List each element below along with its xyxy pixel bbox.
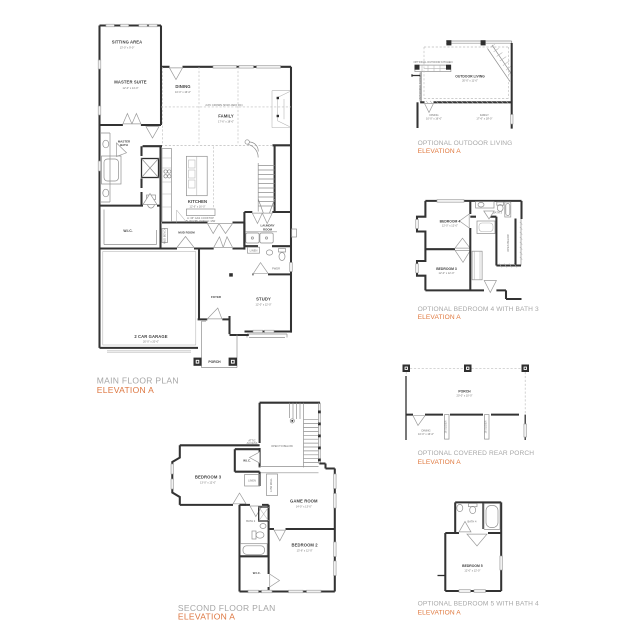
svg-text:13'-0" x 9'-0": 13'-0" x 9'-0" bbox=[120, 46, 135, 50]
svg-text:12'-0" x 12'-0": 12'-0" x 12'-0" bbox=[442, 224, 458, 228]
svg-text:GAME ROOM: GAME ROOM bbox=[290, 499, 318, 504]
svg-text:PORCH: PORCH bbox=[208, 360, 221, 364]
svg-text:20'-0" x 20'-0": 20'-0" x 20'-0" bbox=[143, 340, 159, 344]
svg-text:12'-0" x 14'-0": 12'-0" x 14'-0" bbox=[123, 86, 139, 90]
svg-text:17'-6" x 18'-0": 17'-6" x 18'-0" bbox=[218, 120, 234, 124]
svg-text:ELEVATION A: ELEVATION A bbox=[178, 612, 235, 622]
svg-text:ELEVATION A: ELEVATION A bbox=[97, 385, 154, 395]
svg-text:DINING: DINING bbox=[175, 84, 190, 89]
svg-text:KITCHEN: KITCHEN bbox=[188, 199, 207, 204]
svg-text:ELEVATION A: ELEVATION A bbox=[418, 459, 462, 466]
svg-text:PWDR: PWDR bbox=[272, 267, 280, 271]
svg-text:10'-0" x 16'-0": 10'-0" x 16'-0" bbox=[426, 117, 442, 121]
svg-text:DINING: DINING bbox=[421, 429, 430, 433]
svg-text:FAMILY: FAMILY bbox=[480, 113, 489, 117]
svg-text:20'-0" x 11'-0": 20'-0" x 11'-0" bbox=[462, 79, 478, 83]
svg-text:LOW WALL: LOW WALL bbox=[269, 478, 273, 492]
svg-text:FAMILY: FAMILY bbox=[218, 114, 234, 119]
svg-text:12'-0" x 12'-0": 12'-0" x 12'-0" bbox=[256, 303, 272, 307]
svg-text:16 SLIDER: 16 SLIDER bbox=[484, 420, 488, 433]
svg-text:OPTIONAL BEDROOM 4 WITH BATH 3: OPTIONAL BEDROOM 4 WITH BATH 3 bbox=[418, 306, 539, 313]
svg-text:13'-6" x 12'-0": 13'-6" x 12'-0" bbox=[297, 549, 313, 553]
svg-text:ACCESS: ACCESS bbox=[247, 441, 258, 445]
svg-text:OPTIONAL OUTDOOR LIVING: OPTIONAL OUTDOOR LIVING bbox=[418, 140, 513, 147]
svg-text:12'-0" x 12'-0": 12'-0" x 12'-0" bbox=[439, 271, 455, 275]
svg-text:STUDY: STUDY bbox=[256, 297, 271, 302]
svg-text:B: 30" DBL OVEN C: MW: B: 30" DBL OVEN C: MW bbox=[186, 219, 216, 223]
svg-text:10'-0" x 16'-0": 10'-0" x 16'-0" bbox=[175, 90, 191, 94]
svg-text:OPTIONAL BEDROOM 5 WITH BATH 4: OPTIONAL BEDROOM 5 WITH BATH 4 bbox=[418, 601, 539, 608]
svg-text:LINEN: LINEN bbox=[250, 249, 258, 253]
svg-text:OPEN TO BELOW: OPEN TO BELOW bbox=[271, 444, 293, 448]
svg-text:ROOM: ROOM bbox=[263, 227, 273, 231]
svg-text:BATH 4: BATH 4 bbox=[468, 520, 477, 524]
svg-text:MUD ROOM: MUD ROOM bbox=[178, 230, 195, 234]
svg-text:ELEVATION A: ELEVATION A bbox=[418, 314, 462, 321]
svg-text:10'-0" x 16'-0": 10'-0" x 16'-0" bbox=[418, 432, 434, 436]
svg-text:DINING: DINING bbox=[429, 113, 438, 117]
svg-text:BEDROOM 3: BEDROOM 3 bbox=[436, 267, 457, 271]
svg-text:BATH: BATH bbox=[120, 143, 128, 147]
svg-text:SITTING AREA: SITTING AREA bbox=[112, 40, 143, 45]
svg-text:ELEVATION A: ELEVATION A bbox=[418, 148, 462, 155]
svg-text:MUD BENCH: MUD BENCH bbox=[163, 228, 167, 244]
svg-text:20'-0" x 10'-0": 20'-0" x 10'-0" bbox=[457, 394, 473, 398]
svg-text:BEDROOM 3: BEDROOM 3 bbox=[195, 475, 222, 480]
svg-text:ELEVATION A: ELEVATION A bbox=[418, 609, 462, 616]
svg-text:PORCH: PORCH bbox=[458, 389, 471, 393]
svg-text:MOTORIZED SCREEN: MOTORIZED SCREEN bbox=[418, 73, 422, 100]
svg-text:LINEN: LINEN bbox=[248, 479, 256, 483]
svg-text:BEDROOM 4: BEDROOM 4 bbox=[440, 220, 461, 224]
svg-text:OPTIONAL OUTDOOR KITCHEN: OPTIONAL OUTDOOR KITCHEN bbox=[413, 60, 452, 64]
svg-text:W.I.C.: W.I.C. bbox=[243, 458, 251, 462]
svg-text:MASTER SUITE: MASTER SUITE bbox=[114, 80, 146, 85]
svg-text:BEDROOM 5: BEDROOM 5 bbox=[462, 564, 483, 568]
svg-text:FOYER: FOYER bbox=[211, 295, 222, 299]
svg-text:W.I.C.: W.I.C. bbox=[253, 571, 261, 575]
svg-text:12'-6" x 16'-0": 12'-6" x 16'-0" bbox=[190, 205, 206, 209]
svg-text:17'-6" x 18'-0": 17'-6" x 18'-0" bbox=[476, 117, 492, 121]
svg-text:13'-0" x 12'-0": 13'-0" x 12'-0" bbox=[200, 481, 216, 485]
svg-text:12'-0" x 12'-0": 12'-0" x 12'-0" bbox=[464, 568, 480, 572]
svg-text:OPTIONAL COVERED REAR PORCH: OPTIONAL COVERED REAR PORCH bbox=[418, 450, 535, 457]
svg-text:OPEN BELOW: OPEN BELOW bbox=[506, 234, 510, 252]
svg-text:16 SLIDER: 16 SLIDER bbox=[444, 420, 448, 433]
svg-text:W.I.C.: W.I.C. bbox=[123, 229, 132, 233]
svg-text:2 CAR GARAGE: 2 CAR GARAGE bbox=[134, 334, 167, 339]
svg-text:2-PC CROWN (9X18 JADO RC): 2-PC CROWN (9X18 JADO RC) bbox=[205, 103, 242, 107]
svg-text:BATH 2: BATH 2 bbox=[246, 519, 255, 523]
svg-text:14'-0" x 13'-0": 14'-0" x 13'-0" bbox=[296, 505, 312, 509]
svg-text:BEDROOM 2: BEDROOM 2 bbox=[291, 543, 318, 548]
svg-text:OUTDOOR LIVING: OUTDOOR LIVING bbox=[455, 74, 485, 78]
